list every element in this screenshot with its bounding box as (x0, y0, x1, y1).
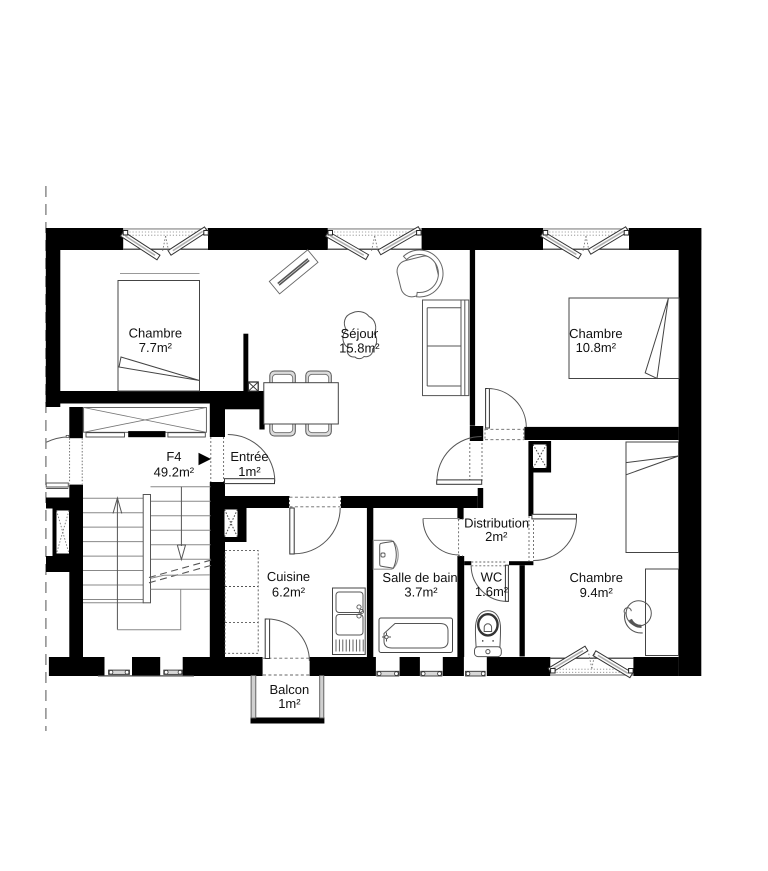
svg-text:F4: F4 (166, 449, 181, 464)
svg-text:1.6m²: 1.6m² (475, 584, 509, 599)
svg-text:Entrée: Entrée (230, 449, 268, 464)
svg-text:2m²: 2m² (485, 529, 508, 544)
svg-text:7.7m²: 7.7m² (139, 340, 173, 355)
svg-text:1m²: 1m² (238, 464, 261, 479)
svg-text:3.7m²: 3.7m² (404, 584, 438, 599)
svg-text:Cuisine: Cuisine (267, 569, 310, 584)
svg-text:Séjour: Séjour (341, 326, 379, 341)
svg-text:Chambre: Chambre (129, 326, 182, 341)
svg-text:10.8m²: 10.8m² (576, 340, 617, 355)
svg-text:Salle de bain: Salle de bain (382, 570, 457, 585)
svg-text:49.2m²: 49.2m² (154, 465, 195, 480)
svg-text:Chambre: Chambre (569, 326, 622, 341)
svg-text:WC: WC (481, 570, 503, 585)
svg-text:1m²: 1m² (278, 696, 301, 711)
svg-text:Chambre: Chambre (569, 570, 622, 585)
svg-text:9.4m²: 9.4m² (580, 585, 614, 600)
svg-text:15.8m²: 15.8m² (339, 340, 380, 355)
svg-text:6.2m²: 6.2m² (272, 585, 306, 600)
